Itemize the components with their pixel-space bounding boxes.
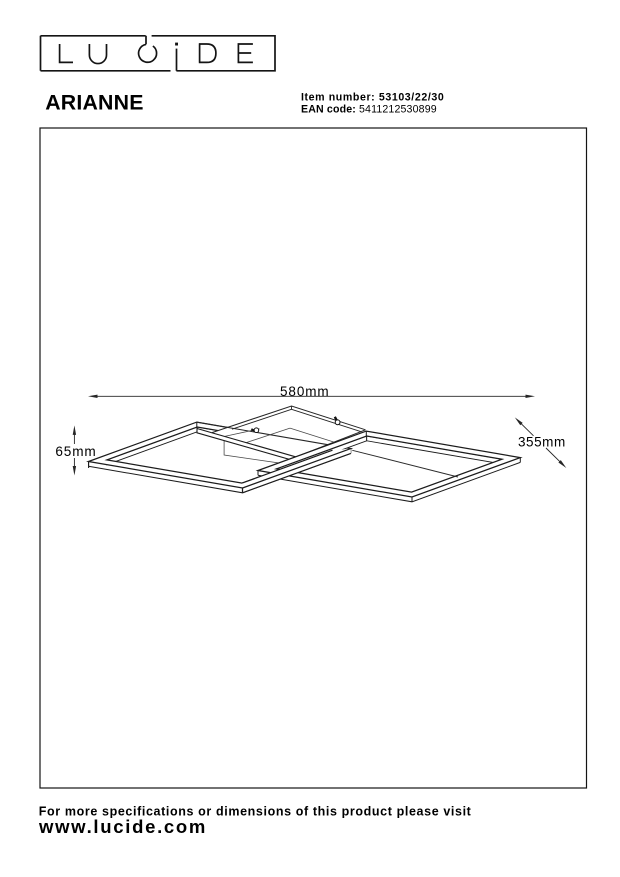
- svg-text:www.lucide.com: www.lucide.com: [38, 816, 207, 837]
- svg-text:65mm: 65mm: [55, 444, 96, 459]
- svg-text:Item number: 53103/22/30: Item number: 53103/22/30: [301, 92, 444, 104]
- svg-text:EAN code: 5411212530899: EAN code: 5411212530899: [301, 103, 437, 115]
- svg-text:ARIANNE: ARIANNE: [45, 91, 143, 115]
- svg-text:580mm: 580mm: [280, 384, 330, 399]
- svg-text:355mm: 355mm: [518, 435, 566, 450]
